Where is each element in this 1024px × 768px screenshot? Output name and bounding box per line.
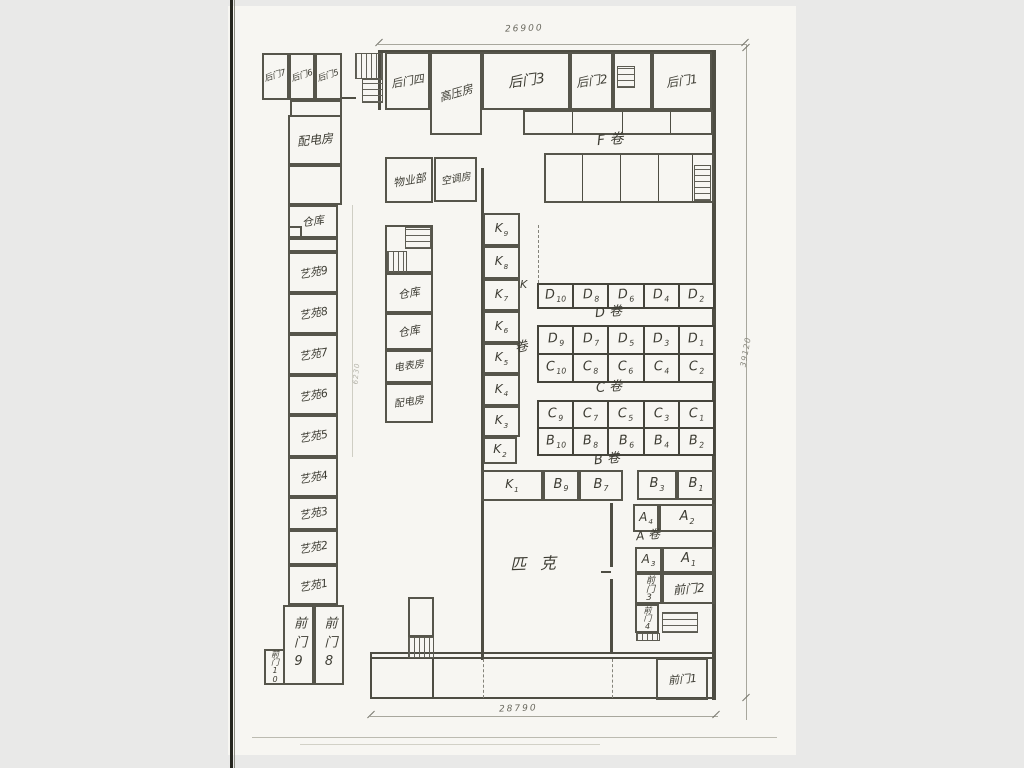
cell-subscript: 6 bbox=[629, 294, 635, 303]
room-label-dianbiaofang: 电表房 bbox=[393, 359, 424, 373]
room-label-main-cangku-left: 仓库 bbox=[301, 214, 325, 230]
room-houmen-2: 后门2 bbox=[570, 52, 613, 110]
cell-label-d5: D5 bbox=[618, 332, 635, 348]
wall-pike-div-lower bbox=[610, 579, 613, 653]
room-label-main-yiyuan-4: 艺苑4 bbox=[298, 468, 329, 486]
room-label-main-qianmen-1: 前门1 bbox=[667, 671, 697, 686]
room-b7: B7 bbox=[579, 470, 623, 501]
room-label-a1: A1 bbox=[681, 552, 696, 567]
cell-label-d6: D6 bbox=[618, 288, 635, 304]
scan-edge-soft bbox=[234, 0, 235, 768]
rows-d-odd-c-even-row-0: D9D7D5D3D1 bbox=[539, 327, 713, 353]
room-k8: K8 bbox=[483, 246, 520, 279]
room-label-main-k1: K bbox=[505, 477, 513, 491]
cell-letter: D bbox=[547, 331, 558, 347]
rows-c-odd-b-even: C9C7C5C3C1B10B8B6B4B2 bbox=[537, 400, 715, 456]
cell-b2: B2 bbox=[678, 429, 713, 454]
room-label-main-k7: K bbox=[495, 287, 503, 301]
wall-arcade-left bbox=[370, 652, 372, 699]
cell-subscript: 3 bbox=[664, 413, 670, 422]
dim-bottom-value: 28790 bbox=[499, 704, 538, 714]
stair-f-stalls bbox=[694, 165, 711, 201]
room-label-k5: K5 bbox=[495, 351, 508, 365]
cell-letter: B bbox=[653, 433, 663, 449]
room-label-main-qianmen-10: 前门10 bbox=[271, 650, 280, 684]
dim-top-line bbox=[378, 44, 746, 45]
room-label-sub-k4: 4 bbox=[504, 389, 509, 398]
room-k7: K7 bbox=[483, 279, 520, 311]
rows-d-odd-c-even: D9D7D5D3D1C10C8C6C4C2 bbox=[537, 325, 715, 383]
cell-label-c3: C3 bbox=[653, 406, 669, 422]
room-label-sub-a2: 2 bbox=[689, 517, 694, 526]
cell-letter: D bbox=[617, 287, 628, 303]
room-label-qianmen-1: 前门1 bbox=[667, 672, 697, 685]
room-label-qianmen-3: 前门3 bbox=[644, 575, 653, 603]
room-yiyuan-8: 艺苑8 bbox=[288, 293, 338, 334]
row-d-even: D10D8D6D4D2 bbox=[537, 283, 715, 309]
cell-label-d1: D1 bbox=[688, 332, 705, 348]
room-label-main-a4: A bbox=[639, 510, 647, 524]
cell-subscript: 4 bbox=[664, 366, 670, 375]
room-houmen-1: 后门1 bbox=[652, 52, 712, 110]
stair-top-bay bbox=[617, 66, 635, 88]
room-yiyuan-7: 艺苑7 bbox=[288, 334, 338, 375]
cell-letter: D bbox=[617, 331, 628, 347]
room-label-sub-k5: 5 bbox=[504, 358, 509, 367]
room-b1: B1 bbox=[677, 470, 715, 500]
room-label-cangku-mid-2: 仓库 bbox=[397, 324, 421, 339]
cell-label-c8: C8 bbox=[583, 360, 599, 376]
room-yiyuan-3: 艺苑3 bbox=[288, 497, 338, 530]
room-label-qianmen-9: 前门9 bbox=[292, 616, 305, 675]
room-label-main-yiyuan-2: 艺苑2 bbox=[298, 539, 329, 557]
cell-letter: C bbox=[547, 406, 557, 422]
room-label-k1: K1 bbox=[505, 478, 518, 492]
cell-subscript: 5 bbox=[628, 413, 634, 422]
cell-letter: C bbox=[618, 406, 628, 422]
room-label-main-qianmen-2: 前门2 bbox=[672, 580, 705, 597]
room-label-kongtiaofang: 空调房 bbox=[440, 172, 471, 187]
room-label-k8: K8 bbox=[495, 255, 508, 269]
section-k-juan: 卷 bbox=[514, 340, 529, 355]
room-label-main-yiyuan-7: 艺苑7 bbox=[298, 346, 329, 364]
cell-letter: D bbox=[545, 287, 556, 303]
room-label-main-qianmen-4: 前门4 bbox=[643, 606, 652, 631]
room-label-k3: K3 bbox=[495, 414, 508, 428]
section-k-letter: K bbox=[520, 279, 527, 290]
room-label-houmen-5: 后门5 bbox=[317, 69, 341, 84]
room-peidianfang-left: 配电房 bbox=[288, 115, 342, 165]
dim-bottom-line bbox=[370, 716, 718, 717]
rows-d-odd-c-even-row-1: C10C8C6C4C2 bbox=[539, 353, 713, 381]
cell-subscript: 9 bbox=[558, 413, 564, 422]
cell-label-b6: B6 bbox=[618, 433, 634, 449]
cell-letter: D bbox=[653, 331, 664, 347]
cell-label-b4: B4 bbox=[653, 433, 669, 449]
room-label-sub-b7: 7 bbox=[603, 484, 608, 493]
cell-c10: C10 bbox=[539, 355, 572, 381]
dash-hall-left bbox=[538, 225, 539, 283]
cell-label-b8: B8 bbox=[583, 433, 599, 449]
room-houmen-3: 后门3 bbox=[482, 52, 570, 110]
cell-subscript: 7 bbox=[593, 413, 599, 422]
room-label-main-k3: K bbox=[495, 413, 503, 427]
cell-label-d4: D4 bbox=[653, 288, 670, 304]
room-label-yiyuan-4: 艺苑4 bbox=[298, 469, 328, 485]
room-left-empty-1 bbox=[288, 165, 342, 205]
room-houmen-7: 后门7 bbox=[262, 53, 289, 100]
room-label-cangku-left: 仓库 bbox=[301, 215, 324, 229]
room-k9: K9 bbox=[483, 213, 520, 246]
scan-bottom-line bbox=[252, 737, 777, 738]
room-label-main-yiyuan-5: 艺苑5 bbox=[298, 427, 329, 445]
room-label-main-yiyuan-8: 艺苑8 bbox=[298, 305, 329, 323]
room-label-sub-a3: 3 bbox=[651, 559, 656, 568]
cell-letter: D bbox=[582, 331, 593, 347]
section-b: B 卷 bbox=[593, 452, 620, 468]
cell-subscript: 4 bbox=[664, 440, 670, 449]
room-label-sub-k6: 6 bbox=[504, 326, 509, 335]
room-label-sub-b3: 3 bbox=[659, 484, 664, 493]
section-f: F 卷 bbox=[596, 132, 624, 148]
room-b3: B3 bbox=[637, 470, 677, 500]
room-label-k7: K7 bbox=[495, 288, 508, 302]
cell-label-c6: C6 bbox=[618, 360, 634, 376]
section-a: A 卷 bbox=[635, 528, 660, 542]
cell-d9: D9 bbox=[539, 327, 572, 353]
room-a1: A1 bbox=[662, 547, 715, 573]
wall-arcade-div bbox=[432, 658, 434, 698]
cell-b4: B4 bbox=[643, 429, 678, 454]
cell-label-c5: C5 bbox=[618, 406, 634, 422]
room-label-qianmen-10: 前门10 bbox=[271, 650, 279, 684]
cell-c1: C1 bbox=[678, 402, 713, 427]
room-label-sub-b1: 1 bbox=[698, 484, 703, 493]
room-label-main-gaoyafang: 高压房 bbox=[437, 81, 474, 104]
room-kongtiaofang: 空调房 bbox=[434, 157, 477, 202]
cell-label-d9: D9 bbox=[547, 332, 564, 348]
room-wuyebu: 物业部 bbox=[385, 157, 433, 203]
cell-subscript: 6 bbox=[628, 366, 634, 375]
cell-subscript: 2 bbox=[699, 440, 705, 449]
room-label-main-b1: B bbox=[689, 476, 698, 491]
room-left-empty-2 bbox=[288, 238, 338, 252]
room-label-main-qianmen-3: 前门3 bbox=[644, 575, 654, 603]
dash-arcade-1 bbox=[483, 659, 484, 698]
room-k6: K6 bbox=[483, 311, 520, 343]
stair-bottomleft bbox=[408, 637, 434, 658]
cell-letter: D bbox=[688, 331, 699, 347]
room-label-main-k5: K bbox=[495, 350, 503, 364]
cell-subscript: 4 bbox=[664, 294, 670, 303]
room-label-main-cangku-mid-2: 仓库 bbox=[397, 323, 421, 340]
cell-letter: C bbox=[545, 359, 555, 375]
cell-letter: C bbox=[583, 359, 593, 375]
room-label-houmen-3: 后门3 bbox=[507, 71, 546, 90]
cell-letter: B bbox=[583, 433, 593, 449]
room-label-yiyuan-7: 艺苑7 bbox=[298, 347, 328, 363]
cell-subscript: 8 bbox=[593, 366, 599, 375]
room-label-b9: B9 bbox=[554, 478, 569, 493]
room-label-main-a3: A bbox=[642, 552, 650, 566]
room-qianmen-10: 前门10 bbox=[264, 649, 285, 685]
cell-letter: C bbox=[653, 359, 663, 375]
room-label-qianmen-4: 前门4 bbox=[643, 606, 651, 631]
cell-letter: B bbox=[618, 433, 628, 449]
cell-subscript: 2 bbox=[699, 294, 705, 303]
room-label-main-a1: A bbox=[681, 551, 690, 566]
cell-b6: B6 bbox=[607, 429, 642, 454]
room-yiyuan-5: 艺苑5 bbox=[288, 415, 338, 457]
cell-c8: C8 bbox=[572, 355, 607, 381]
room-label-sub-a4: 4 bbox=[648, 517, 653, 526]
cell-c7: C7 bbox=[572, 402, 607, 427]
stair-a-block bbox=[662, 612, 698, 633]
scan-edge-dark bbox=[230, 0, 233, 768]
stair-mid-upper bbox=[405, 227, 431, 249]
cell-c9: C9 bbox=[539, 402, 572, 427]
room-label-main-yiyuan-9: 艺苑9 bbox=[298, 264, 329, 282]
room-label-qianmen-8: 前门8 bbox=[323, 616, 336, 675]
room-a3: A3 bbox=[635, 547, 662, 573]
room-label-main-houmen-5: 后门5 bbox=[316, 68, 340, 84]
room-k1: K1 bbox=[481, 470, 543, 501]
room-qianmen-8: 前门8 bbox=[314, 605, 344, 685]
room-label-qianmen-2: 前门2 bbox=[672, 581, 705, 596]
room-label-houmen-4: 后门四 bbox=[390, 73, 424, 90]
room-label-k9: K9 bbox=[495, 222, 508, 236]
cell-subscript: 10 bbox=[556, 440, 567, 450]
cell-letter: D bbox=[688, 287, 699, 303]
room-cangku-mid-1: 仓库 bbox=[385, 273, 433, 313]
cell-subscript: 3 bbox=[664, 338, 670, 347]
room-label-main-b7: B bbox=[594, 477, 603, 492]
room-label-main-b3: B bbox=[650, 476, 659, 491]
room-label-yiyuan-6: 艺苑6 bbox=[298, 387, 328, 403]
cell-letter: D bbox=[582, 287, 593, 303]
room-label-k2: K2 bbox=[493, 443, 506, 457]
cell-c2: C2 bbox=[678, 355, 713, 381]
cell-label-b2: B2 bbox=[688, 433, 704, 449]
room-gaoyafang: 高压房 bbox=[430, 52, 482, 135]
room-label-main-k9: K bbox=[495, 221, 503, 235]
room-label-yiyuan-5: 艺苑5 bbox=[298, 428, 328, 444]
wall-pike-div-upper bbox=[610, 503, 613, 567]
rows-c-odd-b-even-row-1: B10B8B6B4B2 bbox=[539, 427, 713, 454]
cell-d1: D1 bbox=[678, 327, 713, 353]
cell-label-c4: C4 bbox=[653, 360, 669, 376]
room-label-main-houmen-1: 后门1 bbox=[665, 72, 698, 90]
cell-label-d7: D7 bbox=[582, 332, 599, 348]
room-label-main-houmen-6: 后门6 bbox=[290, 68, 314, 84]
room-label-main-b9: B bbox=[554, 477, 563, 492]
room-label-main-k2: K bbox=[493, 442, 501, 456]
cell-label-d3: D3 bbox=[653, 332, 670, 348]
pike-hall: 匹克 bbox=[510, 555, 571, 573]
room-yiyuan-4: 艺苑4 bbox=[288, 457, 338, 497]
cell-label-c9: C9 bbox=[548, 406, 564, 422]
room-yiyuan-6: 艺苑6 bbox=[288, 375, 338, 415]
cell-subscript: 9 bbox=[559, 338, 565, 347]
room-cangku-notch bbox=[288, 226, 302, 238]
room-label-main-peidianfang-left: 配电房 bbox=[296, 131, 333, 149]
room-label-a3: A3 bbox=[642, 553, 656, 567]
room-label-main-a2: A bbox=[680, 509, 689, 524]
room-k4: K4 bbox=[483, 374, 520, 406]
room-label-b1: B1 bbox=[689, 477, 704, 492]
room-b9: B9 bbox=[543, 470, 579, 501]
stair-topleft-upper bbox=[355, 53, 383, 79]
room-label-main-yiyuan-3: 艺苑3 bbox=[298, 505, 329, 523]
room-label-main-peidianfang-mid: 配电房 bbox=[393, 395, 424, 410]
room-label-houmen-2: 后门2 bbox=[575, 73, 608, 89]
room-label-main-k4: K bbox=[495, 382, 503, 396]
section-d: D 卷 bbox=[594, 305, 622, 320]
room-label-main-wuyebu: 物业部 bbox=[392, 171, 427, 190]
cell-c3: C3 bbox=[643, 402, 678, 427]
room-label-houmen-6: 后门6 bbox=[290, 69, 314, 84]
cell-letter: C bbox=[688, 406, 698, 422]
cell-subscript: 6 bbox=[628, 440, 634, 449]
room-label-main-k6: K bbox=[495, 319, 503, 333]
room-yiyuan-9: 艺苑9 bbox=[288, 252, 338, 293]
room-qianmen-1: 前门1 bbox=[656, 658, 708, 700]
room-label-main-qianmen-9: 前门9 bbox=[291, 616, 306, 675]
cell-label-c10: C10 bbox=[545, 360, 566, 377]
cell-label-c1: C1 bbox=[688, 406, 704, 422]
room-label-main-houmen-3: 后门3 bbox=[507, 71, 546, 92]
room-label-yiyuan-1: 艺苑1 bbox=[298, 577, 328, 593]
cell-letter: B bbox=[688, 433, 698, 449]
room-qianmen-3: 前门3 bbox=[635, 573, 662, 604]
cell-b8: B8 bbox=[572, 429, 607, 454]
room-yiyuan-2: 艺苑2 bbox=[288, 530, 338, 565]
room-label-wuyebu: 物业部 bbox=[392, 172, 426, 189]
room-label-main-houmen-2: 后门2 bbox=[575, 72, 608, 90]
room-label-sub-a1: 1 bbox=[691, 559, 696, 568]
room-dianbiaofang: 电表房 bbox=[385, 350, 433, 383]
cell-letter: C bbox=[653, 406, 663, 422]
scan-bottom-line-2 bbox=[300, 744, 600, 745]
room-yiyuan-1: 艺苑1 bbox=[288, 565, 338, 605]
room-houmen-6: 后门6 bbox=[289, 53, 315, 100]
cell-label-d10: D10 bbox=[545, 288, 567, 305]
room-label-sub-k3: 3 bbox=[504, 421, 509, 430]
room-f-stalls bbox=[544, 153, 714, 203]
room-label-yiyuan-3: 艺苑3 bbox=[298, 506, 328, 522]
room-k2: K2 bbox=[483, 437, 517, 464]
room-label-a2: A2 bbox=[680, 510, 695, 525]
stair-mid-lower bbox=[387, 251, 407, 273]
cell-label-b10: B10 bbox=[545, 433, 566, 450]
room-label-main-yiyuan-6: 艺苑6 bbox=[298, 386, 329, 404]
room-qianmen-4: 前门4 bbox=[635, 604, 659, 633]
room-label-peidianfang-left: 配电房 bbox=[296, 132, 333, 148]
room-a2: A2 bbox=[659, 504, 715, 532]
dim-left-line bbox=[352, 205, 353, 457]
cell-letter: C bbox=[618, 359, 628, 375]
cell-d8: D8 bbox=[572, 285, 607, 307]
room-label-sub-k1: 1 bbox=[514, 485, 519, 494]
room-label-houmen-1: 后门1 bbox=[665, 73, 698, 89]
room-label-a4: A4 bbox=[639, 511, 653, 525]
cell-label-d8: D8 bbox=[582, 288, 599, 304]
cell-letter: D bbox=[653, 287, 664, 303]
room-bl-stair-room bbox=[408, 597, 434, 637]
room-label-sub-k2: 2 bbox=[502, 450, 507, 459]
room-label-main-k8: K bbox=[495, 254, 503, 268]
cell-subscript: 5 bbox=[629, 338, 635, 347]
cell-subscript: 2 bbox=[699, 366, 705, 375]
dash-arcade-2 bbox=[612, 659, 613, 698]
scanned-floor-plan: 后门7后门6后门5配电房仓库艺苑9艺苑8艺苑7艺苑6艺苑5艺苑4艺苑3艺苑2艺苑… bbox=[0, 0, 1024, 768]
cell-subscript: 7 bbox=[594, 338, 600, 347]
cell-letter: C bbox=[583, 406, 593, 422]
cell-label-d2: D2 bbox=[688, 288, 705, 304]
dim-right-line bbox=[746, 44, 747, 720]
room-label-k6: K6 bbox=[495, 320, 508, 334]
cell-subscript: 8 bbox=[593, 440, 599, 449]
room-label-b3: B3 bbox=[650, 477, 665, 492]
room-label-houmen-7: 后门7 bbox=[264, 69, 288, 84]
dim-top-value: 26900 bbox=[505, 24, 544, 34]
room-label-b7: B7 bbox=[594, 478, 609, 493]
cell-subscript: 8 bbox=[594, 294, 600, 303]
room-label-sub-k8: 8 bbox=[504, 262, 509, 271]
cell-d3: D3 bbox=[643, 327, 678, 353]
cell-d5: D5 bbox=[607, 327, 642, 353]
room-label-gaoyafang: 高压房 bbox=[438, 83, 474, 104]
stair-topleft-lower bbox=[362, 79, 383, 103]
cell-letter: B bbox=[545, 433, 555, 449]
cell-b10: B10 bbox=[539, 429, 572, 454]
room-k3: K3 bbox=[483, 406, 520, 437]
room-label-yiyuan-8: 艺苑8 bbox=[298, 306, 328, 322]
room-qianmen-9: 前门9 bbox=[283, 605, 314, 685]
room-peidianfang-mid: 配电房 bbox=[385, 383, 433, 423]
room-label-main-dianbiaofang: 电表房 bbox=[393, 358, 424, 373]
wall-pike-door-tick bbox=[601, 571, 611, 573]
cell-subscript: 10 bbox=[556, 294, 567, 304]
room-label-sub-b9: 9 bbox=[563, 484, 568, 493]
room-label-sub-k7: 7 bbox=[504, 294, 509, 303]
cell-c6: C6 bbox=[607, 355, 642, 381]
room-qianmen-2: 前门2 bbox=[662, 573, 715, 604]
room-label-k4: K4 bbox=[495, 383, 508, 397]
room-label-peidianfang-mid: 配电房 bbox=[393, 396, 424, 410]
cell-subscript: 1 bbox=[699, 338, 705, 347]
cell-letter: C bbox=[688, 359, 698, 375]
cell-d10: D10 bbox=[539, 285, 572, 307]
row-d-even-row-0: D10D8D6D4D2 bbox=[539, 285, 713, 307]
room-label-sub-k9: 9 bbox=[504, 229, 509, 238]
room-label-cangku-mid-1: 仓库 bbox=[397, 286, 421, 301]
cell-d2: D2 bbox=[678, 285, 713, 307]
cell-label-c2: C2 bbox=[688, 360, 704, 376]
cell-c4: C4 bbox=[643, 355, 678, 381]
room-label-yiyuan-9: 艺苑9 bbox=[298, 265, 328, 281]
cell-subscript: 10 bbox=[556, 366, 567, 376]
room-label-main-kongtiaofang: 空调房 bbox=[440, 171, 471, 187]
room-cangku-mid-2: 仓库 bbox=[385, 313, 433, 350]
cell-subscript: 1 bbox=[699, 413, 705, 422]
room-label-main-cangku-mid-1: 仓库 bbox=[397, 285, 421, 302]
room-label-yiyuan-2: 艺苑2 bbox=[298, 540, 328, 556]
cell-label-c7: C7 bbox=[583, 406, 599, 422]
room-label-main-houmen-4: 后门四 bbox=[390, 72, 425, 91]
wall-annex-link bbox=[342, 97, 356, 99]
cell-c5: C5 bbox=[607, 402, 642, 427]
